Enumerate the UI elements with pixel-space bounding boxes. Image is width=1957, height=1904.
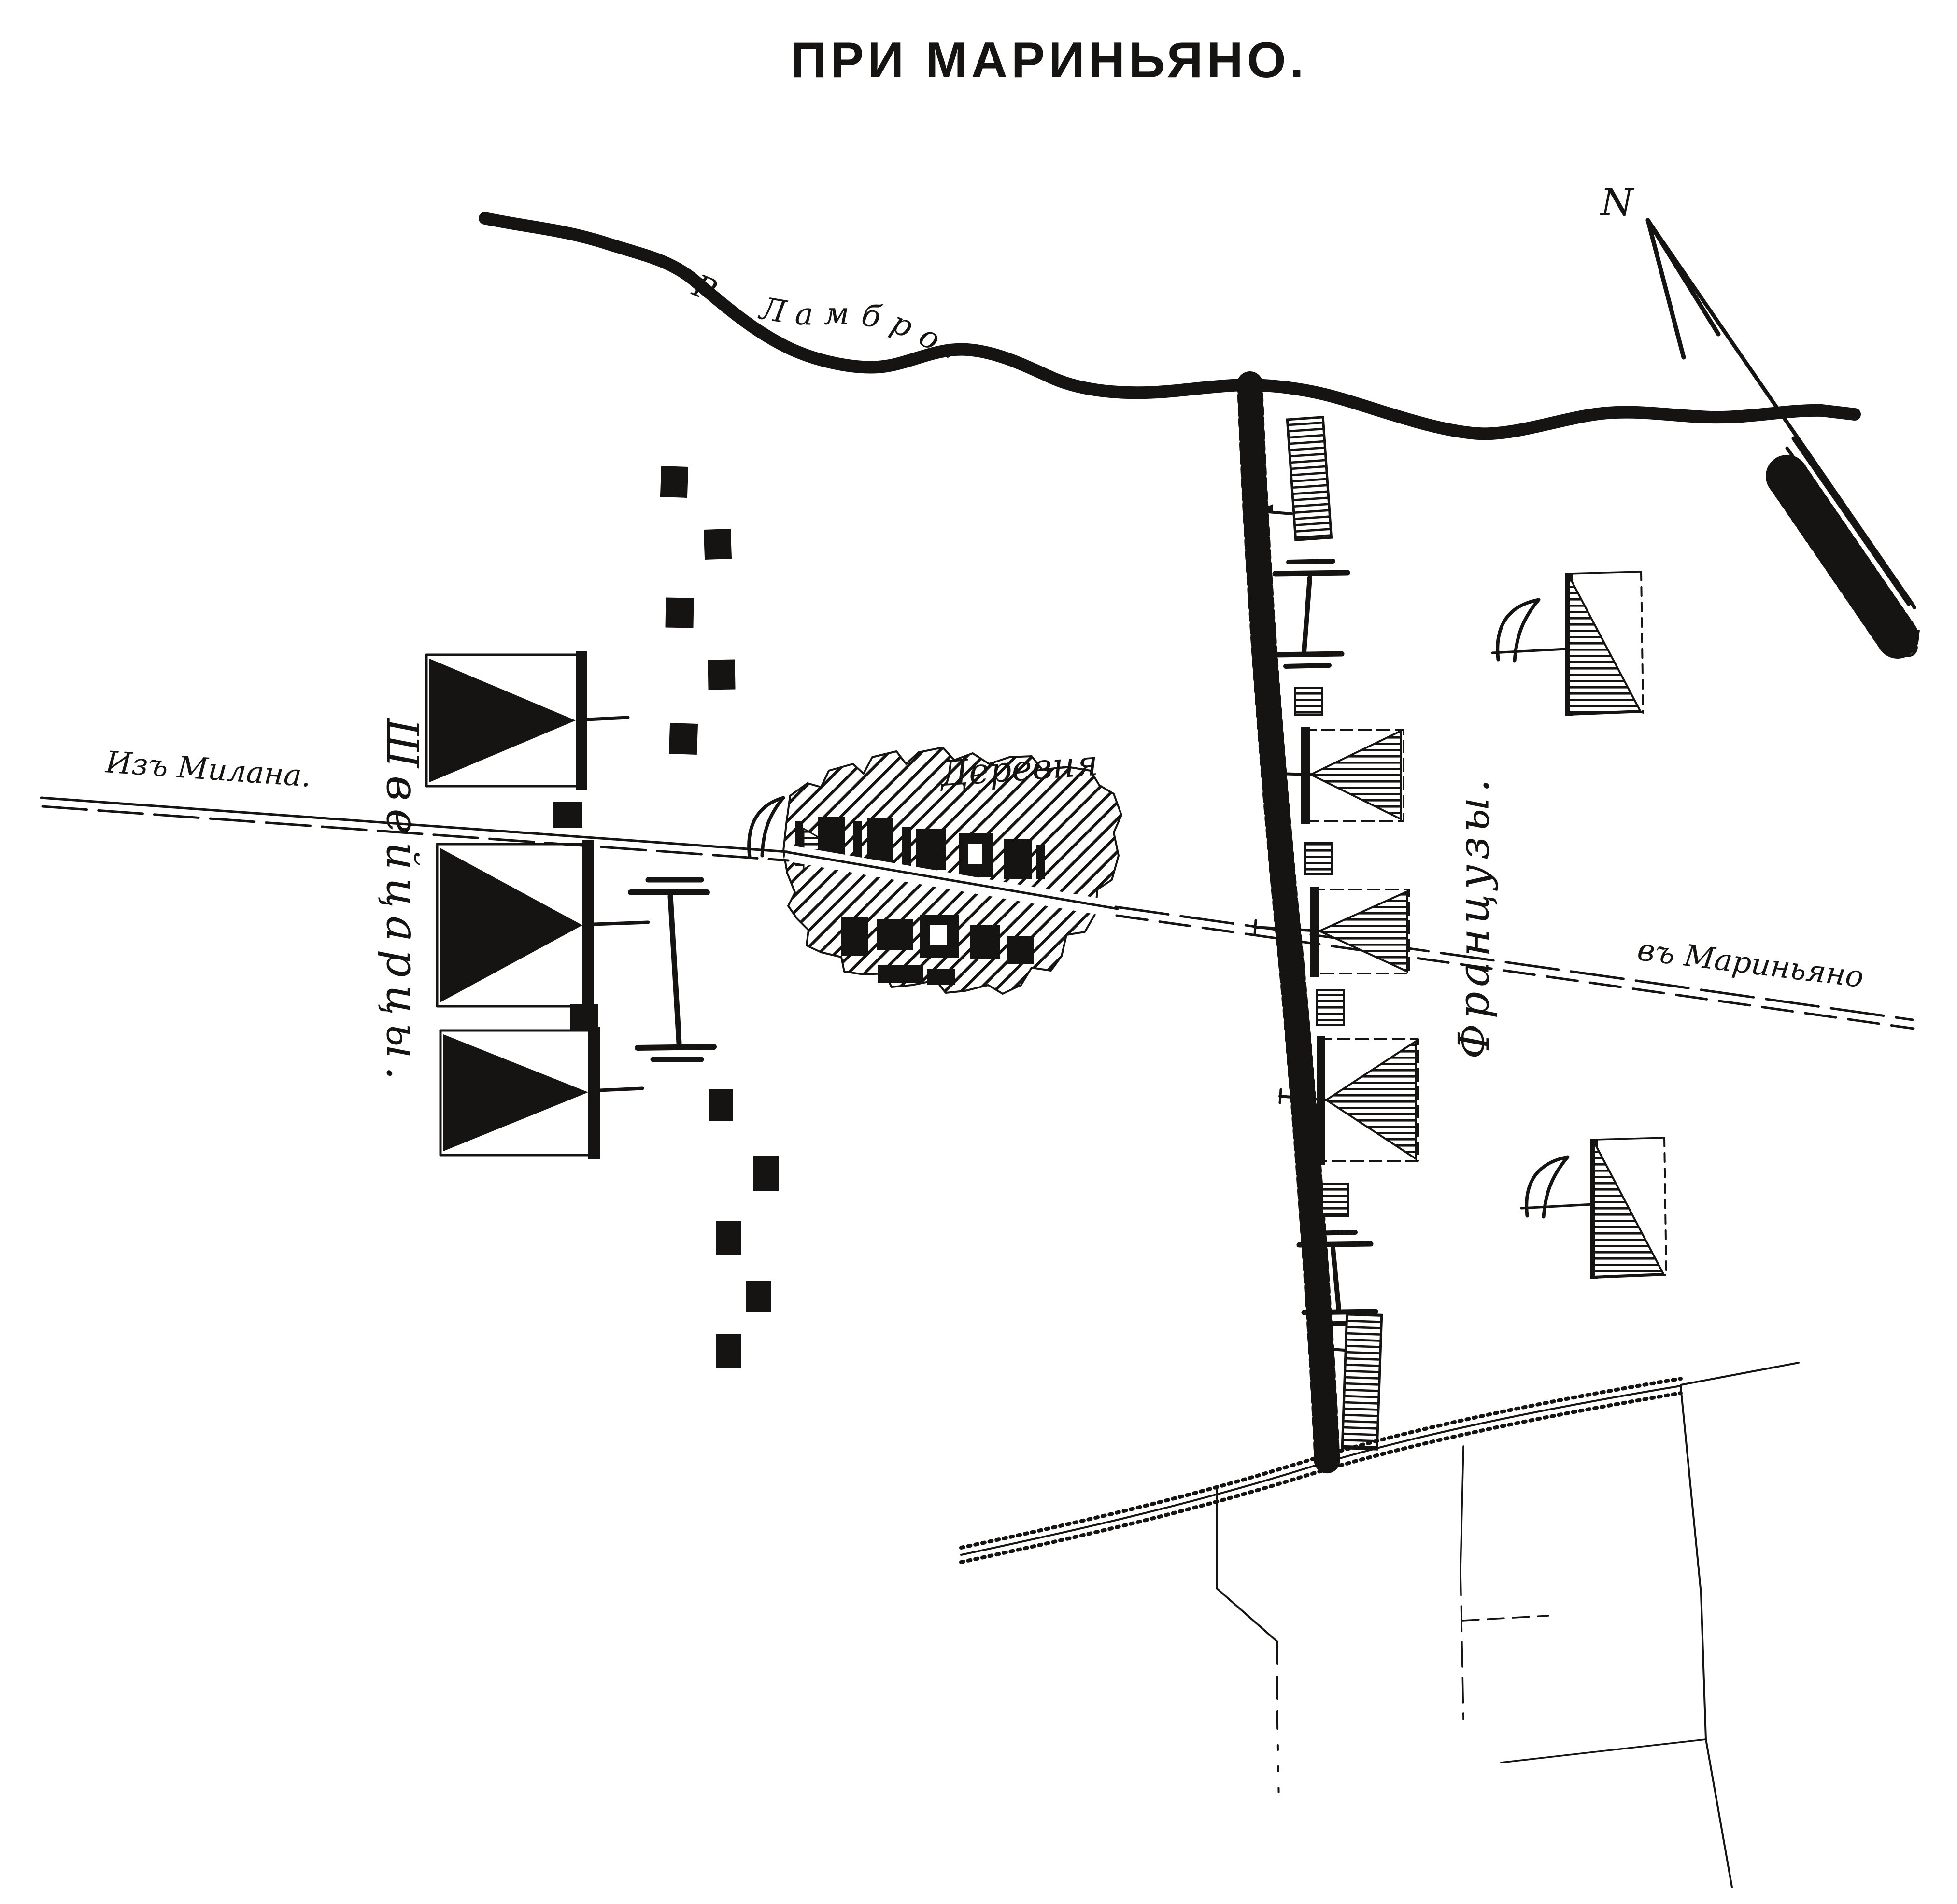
compass-north-label: N (1600, 181, 1635, 225)
map-title: ПРИ МАРИНЬЯНО. (790, 32, 1307, 88)
battle-map: ПРИ МАРИНЬЯНО. Р. Ламбро. N S (0, 0, 1957, 1904)
french-army-label: Французы. (1449, 774, 1499, 1059)
battle-map-page: ПРИ МАРИНЬЯНО. Р. Ламбро. N S (0, 0, 1957, 1904)
french-column-pointer (1319, 1348, 1345, 1350)
compass-south-label: S (1896, 622, 1921, 666)
french-line-unit (1287, 417, 1331, 540)
swiss-army-label: Швейцарцы. (377, 717, 427, 1087)
french-column-unit (1342, 1314, 1382, 1449)
